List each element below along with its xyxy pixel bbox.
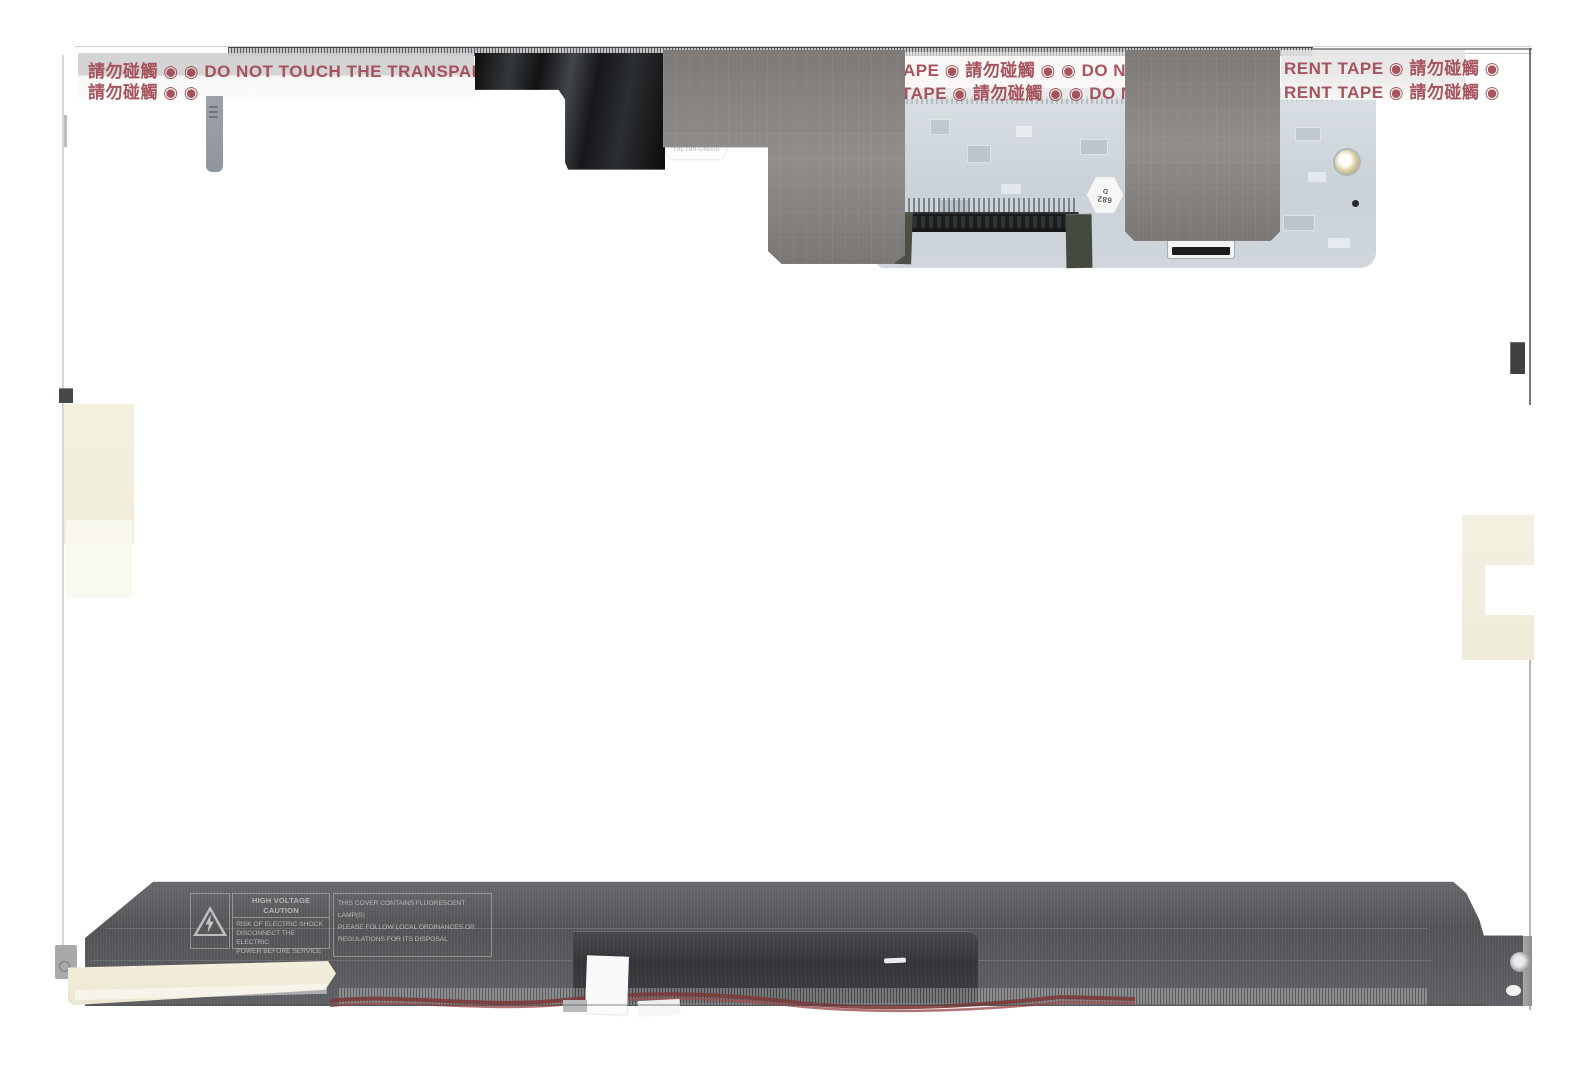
pcb-component [1284, 216, 1314, 230]
tape-text-left-row2: 請勿碰觸 ◉ ◉ [88, 78, 199, 103]
panel-left-slot [64, 115, 67, 147]
high-voltage-body: RISK OF ELECTRIC SHOCK DISCONNECT THE EL… [233, 918, 329, 959]
fl-line1: THIS COVER CONTAINS FLUORESCENT LAMP(S) [338, 898, 487, 922]
tape-text-right-row2: RENT TAPE ◉ 請勿碰觸 ◉ [1284, 78, 1500, 103]
serial-label-text: Y8C7B9-GN000 [673, 147, 720, 153]
tape-text-middle-row2: TAPE ◉ 請勿碰觸 ◉ ◉ DO N [901, 79, 1134, 104]
aux-connector [1168, 238, 1234, 258]
warning-label-cluster: HIGH VOLTAGE CAUTION RISK OF ELECTRIC SH… [190, 893, 492, 949]
cream-tape-right-cutout [1485, 565, 1534, 615]
pcb-component [1016, 126, 1032, 137]
lvds-pin-comb [903, 198, 1075, 212]
tape-text-middle-row1: APE ◉ 請勿碰觸 ◉ ◉ DO N [903, 56, 1126, 81]
hv-title-line2: CAUTION [233, 906, 329, 916]
lvds-connector [899, 212, 1079, 232]
panel-bottom-edge [85, 1004, 1485, 1006]
high-voltage-label: HIGH VOLTAGE CAUTION RISK OF ELECTRIC SH… [232, 893, 330, 949]
hv-body-line3: POWER BEFORE SERVICE [236, 947, 326, 956]
fl-line3: REGULATIONS FOR ITS DISPOSAL [338, 934, 487, 946]
pcb-component [1308, 172, 1326, 182]
high-voltage-triangle-box [190, 893, 230, 949]
bottom-right-screw [1510, 952, 1530, 972]
cream-tape-left-lower [66, 520, 132, 598]
pcb-component [1081, 140, 1107, 154]
hv-body-line2: DISCONNECT THE ELECTRIC [236, 929, 326, 947]
fl-line2: PLEASE FOLLOW LOCAL ORDINANCES OR [338, 922, 487, 934]
tape-text-right-row1: RENT TAPE ◉ 請勿碰觸 ◉ [1284, 54, 1500, 79]
hv-body-line1: RISK OF ELECTRIC SHOCK [236, 920, 326, 929]
connector-tape-tab-right [1066, 214, 1093, 268]
fluorescent-lamp-label: THIS COVER CONTAINS FLUORESCENT LAMP(S) … [333, 893, 492, 957]
bottom-right-hole [1506, 985, 1521, 996]
hv-title-line1: HIGH VOLTAGE [233, 896, 329, 906]
white-mark [884, 958, 906, 964]
pcb-component [1001, 184, 1021, 194]
lcd-panel-rear-photo: 682 D Y8C7B9-GN000 請勿碰觸 ◉ ◉ DO NOT TOUCH… [0, 0, 1580, 1080]
high-voltage-icon [193, 906, 227, 936]
white-tape-bit [638, 999, 681, 1017]
backlight-wire-harness [330, 985, 1140, 1017]
pcb-black-dot [1352, 200, 1359, 207]
pcb-component [931, 120, 949, 134]
hex-sticker-letter: D [1103, 187, 1109, 195]
fabric-tape-patch-right [1125, 50, 1280, 241]
pcb-component [968, 146, 990, 162]
hex-sticker-number: 682 [1097, 194, 1113, 204]
left-mount-tab [59, 388, 73, 403]
gray-tape-bit [563, 1000, 587, 1012]
right-mount-tab [1510, 342, 1525, 374]
pcb-screw-pad [1335, 150, 1359, 174]
black-foil-tape [475, 53, 665, 172]
pcb-component [1296, 128, 1320, 140]
hinge-flex-strip [206, 96, 223, 172]
panel-right-edge-top [1529, 48, 1531, 405]
high-voltage-title: HIGH VOLTAGE CAUTION [233, 894, 329, 918]
pcb-component [1328, 238, 1350, 248]
